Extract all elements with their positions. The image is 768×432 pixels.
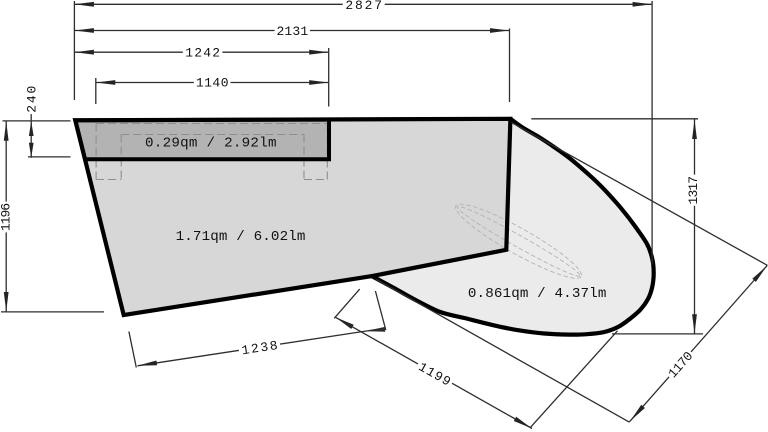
svg-text:1196: 1196 bbox=[0, 204, 13, 231]
svg-text:240: 240 bbox=[24, 84, 39, 113]
svg-text:1317: 1317 bbox=[686, 177, 701, 205]
svg-text:0.861qm / 4.37lm: 0.861qm / 4.37lm bbox=[468, 286, 607, 302]
svg-text:0.29qm / 2.92lm: 0.29qm / 2.92lm bbox=[145, 136, 277, 152]
svg-text:2131: 2131 bbox=[276, 24, 308, 39]
svg-text:1242: 1242 bbox=[185, 45, 221, 60]
svg-text:1.71qm / 6.02lm: 1.71qm / 6.02lm bbox=[176, 229, 306, 245]
svg-text:1140: 1140 bbox=[196, 76, 229, 91]
svg-text:2827: 2827 bbox=[345, 0, 383, 13]
